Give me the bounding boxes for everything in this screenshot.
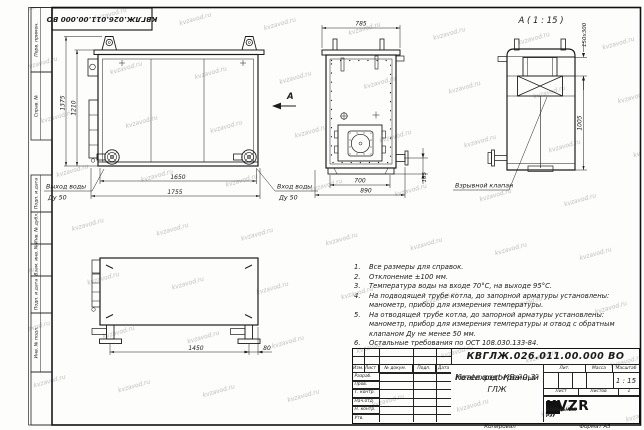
note-item: 4.На подводящей трубе котла, до запорной…	[354, 292, 626, 311]
note-text: Отклонение ±100 мм.	[369, 273, 626, 283]
technical-notes: 1.Все размеры для справок. 2.Отклонение …	[354, 263, 626, 349]
explosion-valve-label: Взрывной клапан	[455, 183, 513, 190]
product-name-line2: Heatexpert-КВа-0,3-ГЛЖ	[451, 372, 543, 396]
doc-number: КВГЛЖ.026.011.00.000 ВО	[451, 349, 639, 365]
section-arrow-label: А	[286, 92, 294, 102]
dim-1450: 1450	[188, 345, 203, 352]
dim-150x300: 150х300	[582, 22, 588, 47]
dim-height-outer: 1375	[59, 95, 66, 110]
note-item: 3.Температура воды на входе 70°С, на вых…	[354, 282, 626, 292]
company-logo-row: KVZR КОТЕЛЬНЫЙ ЗАВОД РЭУ	[544, 398, 639, 416]
note-item: 2.Отклонение ±100 мм.	[354, 273, 626, 283]
col-list: Лист	[364, 365, 379, 373]
row-razrab: Разраб.	[353, 373, 379, 381]
note-number: 1.	[354, 263, 369, 273]
row-utv: Утв.	[353, 414, 379, 422]
title-block: КВГЛЖ.026.011.00.000 ВО Изм. Лист № доку…	[352, 348, 640, 424]
product-name-cell: Котел водогрейный Heatexpert-КВа-0,3-ГЛЖ	[451, 365, 544, 422]
row-nachotd: Нач.отд.	[353, 398, 379, 406]
note-text: На подводящей трубе котла, до запорной а…	[369, 292, 626, 311]
back-view-title: А ( 1 : 15 )	[517, 16, 563, 26]
row-nkontr: Н. контр.	[353, 406, 379, 414]
stamp-label: Подп. и дата	[34, 279, 40, 310]
note-number: 2.	[354, 273, 369, 283]
mass-label: Масса	[586, 365, 613, 373]
note-text: Все размеры для справок.	[369, 263, 626, 273]
sheets-value: 1	[619, 388, 639, 396]
note-item: 1.Все размеры для справок.	[354, 263, 626, 273]
row-prov: Пров.	[353, 381, 379, 389]
col-data: Дата	[436, 365, 451, 373]
sheets-label: Листов	[579, 388, 619, 396]
note-text: На отводящей трубе котла, до запорной ар…	[369, 311, 626, 340]
signature-grid: Изм. Лист № докум. Подп. Дата Разраб. Пр…	[353, 349, 451, 422]
inlet-label: Вход воды	[277, 184, 312, 191]
outlet-label: Выход воды	[46, 184, 86, 191]
col-docum: № докум.	[379, 365, 414, 373]
dim-80: 80	[263, 345, 271, 352]
col-izm: Изм.	[353, 365, 364, 373]
dim-1005: 1005	[577, 115, 584, 130]
row-tkontr: Т. контр.	[353, 389, 379, 397]
stamp-label: Инв. № подл.	[34, 327, 40, 359]
dim-785: 785	[355, 21, 367, 28]
dim-700: 700	[354, 178, 366, 185]
note-item: 5.На отводящей трубе котла, до запорной …	[354, 311, 626, 340]
scale-label: Масштаб	[613, 365, 639, 373]
drawing-sheet: kvzavod.ru kvzavod.ru Перв. примен. Спра…	[0, 0, 644, 430]
note-text: Температура воды на входе 70°С, на выход…	[369, 282, 626, 292]
inlet-dn-label: Ду 50	[278, 195, 298, 202]
format-label: Формат А3	[555, 424, 635, 430]
dim-890: 890	[360, 188, 372, 195]
stamp-label: Справ. №	[34, 95, 40, 118]
stamp-label: Перв. примен.	[34, 22, 40, 57]
sheet-label: Лист	[544, 388, 579, 396]
stamp-label: Подп. и дата	[34, 178, 40, 209]
outlet-dn-label: Ду 50	[47, 195, 67, 202]
scale-value: 1 : 15	[613, 373, 639, 388]
note-number: 5.	[354, 311, 369, 340]
note-number: 4.	[354, 292, 369, 311]
company-name-line2: ЗАВОД РЭУ	[546, 407, 563, 420]
dim-width-inner: 1650	[170, 174, 185, 181]
lit-label: Лит.	[544, 365, 586, 373]
copied-label: Копировал	[460, 424, 540, 430]
stamp-label: Взам. инв. №	[34, 244, 40, 275]
title-block-right: Лит. Масса Масштаб 1 : 15 Лист Листов 1 …	[544, 365, 639, 422]
dim-165: 165	[422, 172, 428, 183]
dim-height-inner: 1210	[70, 100, 77, 115]
dim-width-outer: 1755	[167, 189, 182, 196]
stamp-label: Инв. № дубл.	[34, 212, 40, 243]
col-podp: Подп.	[413, 365, 436, 373]
note-number: 3.	[354, 282, 369, 292]
doc-number-rotated: КВГЛЖ.026.011.00.000 ВО	[47, 15, 158, 24]
